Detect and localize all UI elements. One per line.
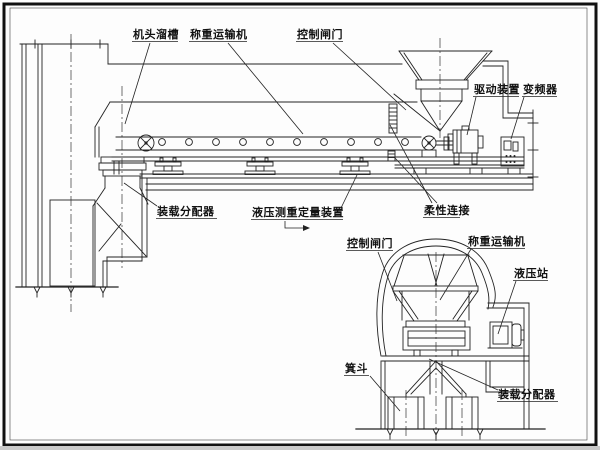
pit-walls: [103, 174, 147, 287]
flexible-connection-bellows: [388, 104, 397, 161]
support-jack: [153, 158, 183, 175]
section-hopper: [393, 286, 478, 327]
label-drive-unit: 驱动装置: [474, 82, 520, 96]
label-flexible-connection: 柔性连接: [423, 203, 470, 217]
frequency-converter-cabinet: [501, 137, 524, 166]
hydraulic-station: [486, 303, 529, 429]
label-head-chute: 机头溜槽: [133, 27, 179, 41]
section-conveyor-box: [403, 327, 470, 356]
section-ground: [356, 429, 545, 439]
diagram-page: 机头溜槽 称重运输机 控制闸门 驱动装置 变频器 装载分配器 液压测重定量装置 …: [0, 0, 600, 450]
label-section-control-gate: 控制闸门: [347, 236, 393, 250]
label-hydraulic-weighing-device: 液压测重定量装置: [252, 205, 344, 219]
label-loading-distributor: 装载分配器: [156, 204, 215, 218]
drive-unit: [436, 126, 483, 164]
support-jack: [245, 158, 275, 175]
labels: 机头溜槽 称重运输机 控制闸门 驱动装置 变频器 装载分配器 液压测重定量装置 …: [132, 27, 558, 402]
label-section-loading-distributor: 装载分配器: [497, 387, 556, 401]
label-hydraulic-station: 液压站: [514, 266, 549, 280]
support-jack: [340, 158, 370, 175]
loading-distributor: [93, 157, 148, 287]
belt-rollers: [159, 139, 409, 146]
label-frequency-converter: 变频器: [523, 82, 558, 96]
gallery-floor: [140, 174, 533, 190]
section-hopper-struts: [394, 254, 477, 286]
skip-bucket-side: [50, 200, 95, 286]
label-weighing-conveyor: 称重运输机: [190, 27, 248, 41]
label-skip-bucket: 箕斗: [344, 361, 368, 375]
label-section-weighing-conveyor: 称重运输机: [468, 234, 526, 248]
label-control-gate: 控制闸门: [297, 27, 343, 41]
section-floor-beam: [382, 356, 529, 361]
section-skip-buckets: [388, 397, 478, 429]
shaft-structure: [16, 40, 402, 297]
hydraulic-weighing-supports: [153, 158, 370, 175]
schematic-svg: 机头溜槽 称重运输机 控制闸门 驱动装置 变频器 装载分配器 液压测重定量装置 …: [0, 0, 600, 450]
flow-direction-arrow: [285, 221, 303, 228]
tail-pulley: [422, 136, 436, 157]
page-border: [0, 4, 600, 450]
weighing-conveyor: [110, 102, 524, 174]
head-chute: [95, 102, 110, 157]
control-gate-plate: [394, 94, 440, 131]
